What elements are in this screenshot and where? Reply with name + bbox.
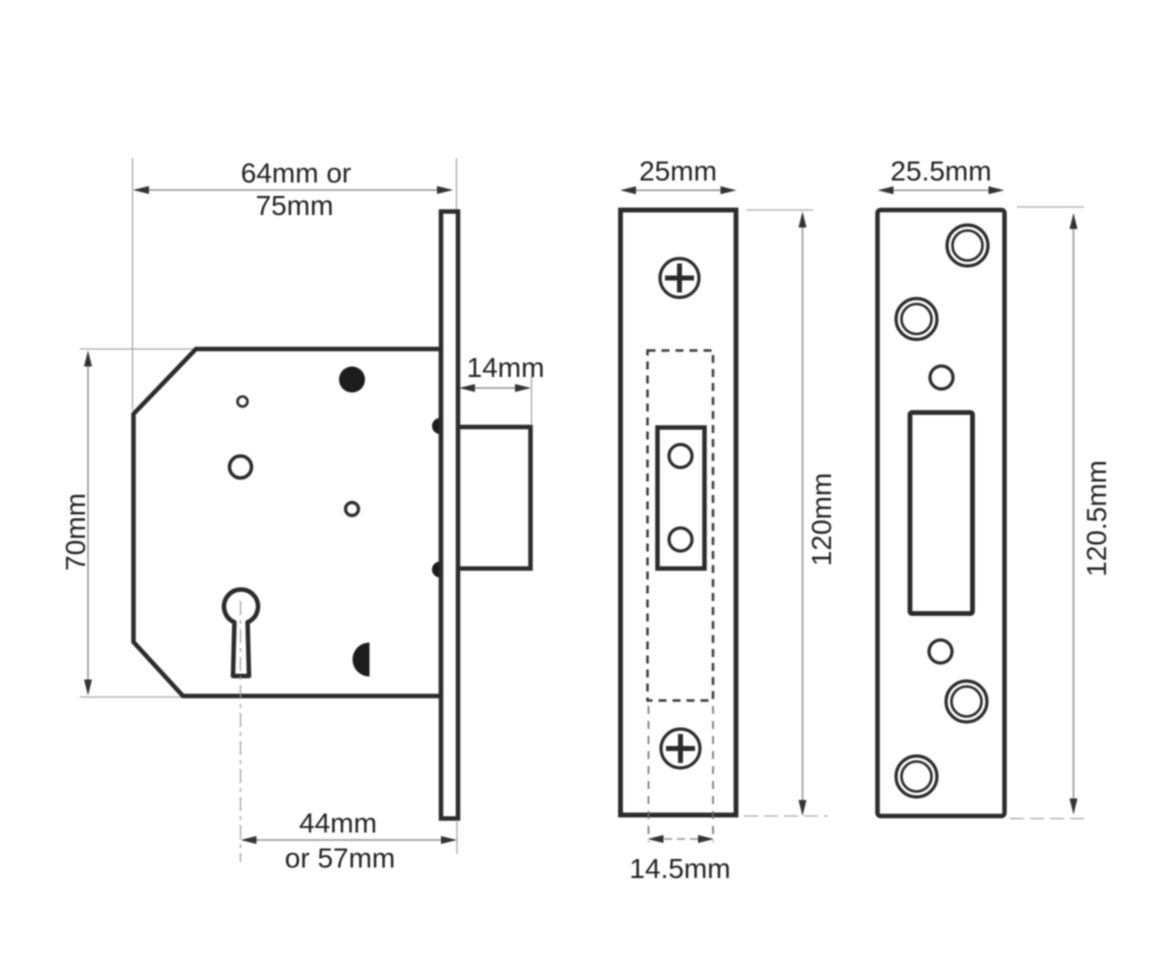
svg-text:70mm: 70mm [60,493,91,571]
svg-text:64mm or: 64mm or [241,158,351,189]
svg-text:120mm: 120mm [806,473,837,566]
svg-text:44mm: 44mm [299,808,377,839]
svg-text:or 57mm: or 57mm [285,843,395,874]
svg-text:14mm: 14mm [467,352,545,383]
svg-text:25mm: 25mm [639,156,717,187]
svg-text:120.5mm: 120.5mm [1081,460,1112,577]
svg-text:75mm: 75mm [256,190,334,221]
svg-text:14.5mm: 14.5mm [629,853,730,884]
svg-text:25.5mm: 25.5mm [890,156,991,187]
